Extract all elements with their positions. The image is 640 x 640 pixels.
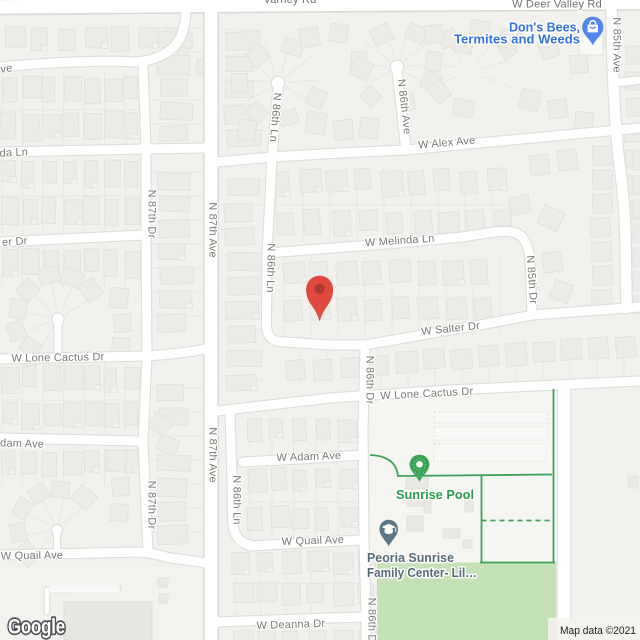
- svg-text:W Deer Valley Rd: W Deer Valley Rd: [512, 0, 602, 11]
- svg-text:N 86th Dr: N 86th Dr: [366, 598, 378, 640]
- svg-text:N 87th Dr: N 87th Dr: [146, 481, 158, 530]
- svg-text:ve: ve: [0, 62, 13, 76]
- svg-text:W Adam Ave: W Adam Ave: [276, 450, 341, 464]
- svg-text:W Quail Ave: W Quail Ave: [1, 549, 64, 562]
- svg-text:N 87th Ave: N 87th Ave: [207, 427, 219, 483]
- svg-text:N 86th Ln: N 86th Ln: [231, 475, 243, 525]
- svg-text:er Dr: er Dr: [2, 235, 28, 249]
- svg-text:Peoria Sunrise: Peoria Sunrise: [367, 550, 454, 565]
- svg-text:W Lone Cactus Dr: W Lone Cactus Dr: [11, 351, 104, 365]
- svg-text:Termites and Weeds: Termites and Weeds: [454, 32, 580, 47]
- svg-text:N 86th Ln: N 86th Ln: [264, 243, 277, 293]
- svg-text:Map data ©2021: Map data ©2021: [560, 625, 636, 637]
- svg-text:dam Ave: dam Ave: [0, 437, 44, 451]
- svg-text:da Ln: da Ln: [0, 146, 28, 159]
- svg-text:N 87th Dr: N 87th Dr: [146, 190, 158, 239]
- svg-text:W Quail Ave: W Quail Ave: [281, 534, 344, 548]
- svg-text:Family Center- Lil…: Family Center- Lil…: [367, 565, 477, 580]
- svg-text:Sunrise Pool: Sunrise Pool: [396, 487, 474, 502]
- svg-text:N 86th Dr: N 86th Dr: [364, 356, 376, 405]
- svg-text:N 85th Ave: N 85th Ave: [611, 17, 623, 73]
- svg-text:Varney Rd: Varney Rd: [264, 0, 317, 6]
- svg-text:Google: Google: [8, 616, 65, 639]
- svg-text:N 87th Ave: N 87th Ave: [207, 202, 219, 258]
- svg-text:W Deanna Dr: W Deanna Dr: [256, 618, 325, 632]
